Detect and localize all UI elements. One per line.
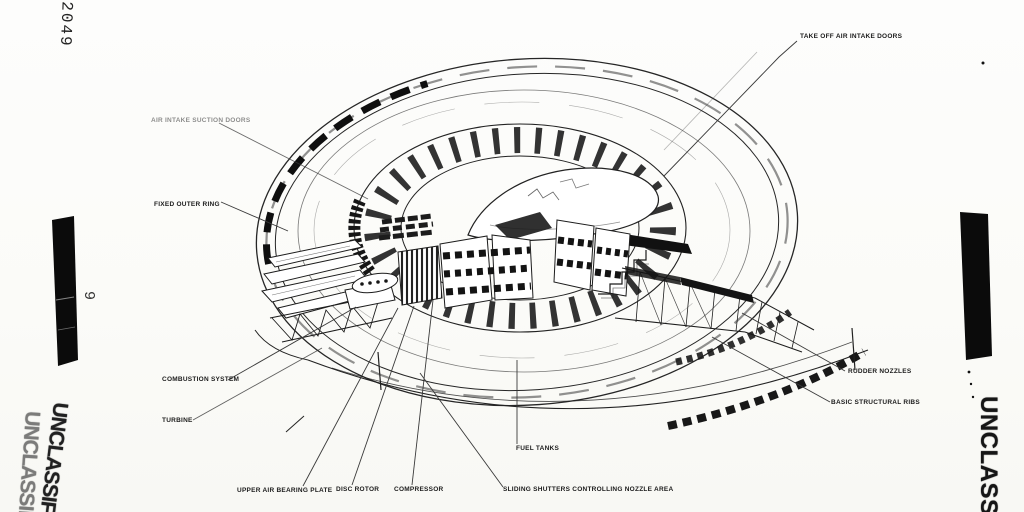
callout-rudder-nozzles: RUDDER NOZZLES — [848, 368, 911, 375]
leader-turbine — [193, 348, 322, 420]
leader-air-intake-suction-doors — [219, 123, 368, 199]
page-number: 9 — [80, 291, 97, 300]
callout-basic-structural-ribs: BASIC STRUCTURAL RIBS — [831, 399, 920, 406]
machinery-right — [554, 220, 814, 352]
callout-take-off-air-intake-doors: TAKE OFF AIR INTAKE DOORS — [800, 33, 902, 40]
callout-air-intake-suction-doors: AIR INTAKE SUCTION DOORS — [151, 117, 250, 124]
leader-disc-rotor — [352, 306, 414, 485]
callout-turbine: TURBINE — [162, 417, 193, 424]
callout-compressor: COMPRESSOR — [394, 486, 443, 493]
callout-fixed-outer-ring: FIXED OUTER RING — [154, 201, 220, 208]
redaction-bar-right — [960, 62, 992, 399]
disc-aircraft-cutaway-diagram — [0, 0, 1024, 512]
redaction-bar-left — [52, 216, 78, 366]
scanned-diagram-page: TAKE OFF AIR INTAKE DOORS AIR INTAKE SUC… — [0, 0, 1024, 512]
callout-disc-rotor: DISC ROTOR — [336, 486, 379, 493]
leader-compressor — [412, 300, 433, 485]
callout-combustion-system: COMBUSTION SYSTEM — [162, 376, 239, 383]
leader-fixed-outer-ring — [221, 202, 288, 231]
document-number: -2049 — [56, 0, 76, 48]
callout-upper-air-bearing-plate: UPPER AIR BEARING PLATE — [237, 487, 332, 494]
stamp-unclassified-right: UNCLASSIFIED — [974, 396, 1002, 512]
callout-fuel-tanks: FUEL TANKS — [516, 445, 559, 452]
callout-sliding-shutters: SLIDING SHUTTERS CONTROLLING NOZZLE AREA — [503, 486, 673, 493]
